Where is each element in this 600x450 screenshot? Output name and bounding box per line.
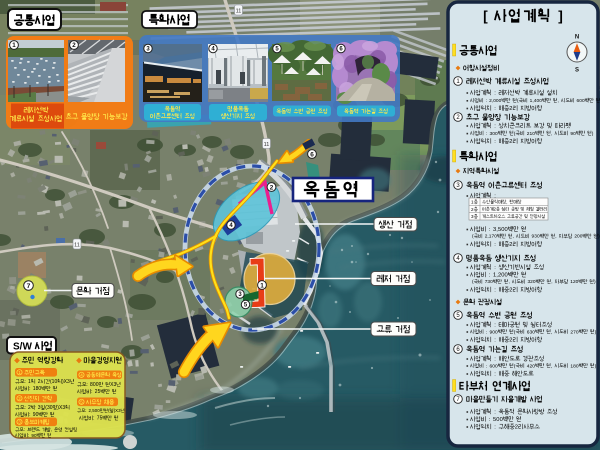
svg-text:1: 1 <box>28 379 31 385</box>
svg-text:0: 0 <box>582 98 585 104</box>
svg-text::: : <box>85 408 86 413</box>
svg-text:11: 11 <box>264 142 270 148</box>
svg-text:0: 0 <box>532 131 535 137</box>
svg-text:,: , <box>551 280 552 285</box>
svg-text:0: 0 <box>50 405 53 411</box>
svg-text::: : <box>486 330 487 335</box>
svg-text:S/W: S/W <box>13 342 32 353</box>
svg-text:0: 0 <box>96 382 99 388</box>
svg-text:0: 0 <box>576 279 579 285</box>
svg-text:]: ] <box>558 9 563 24</box>
svg-text:2: 2 <box>18 396 21 401</box>
svg-text:0: 0 <box>580 234 583 240</box>
svg-text:5: 5 <box>98 389 101 395</box>
svg-text:,: , <box>51 427 52 432</box>
svg-text::: : <box>29 386 30 392</box>
svg-text:1: 1 <box>18 370 21 375</box>
svg-text:0: 0 <box>505 227 508 233</box>
svg-text:,: , <box>551 132 552 137</box>
svg-text:0: 0 <box>532 329 535 335</box>
svg-text:0: 0 <box>537 234 540 240</box>
svg-text:[: [ <box>483 9 488 24</box>
svg-text:S: S <box>575 68 579 74</box>
svg-text::: : <box>486 99 487 104</box>
svg-text:1: 1 <box>260 282 264 289</box>
svg-text:6: 6 <box>310 151 314 158</box>
svg-text:11: 11 <box>74 243 80 249</box>
svg-text:0: 0 <box>495 363 498 369</box>
svg-text:0: 0 <box>532 363 535 369</box>
svg-text:2: 2 <box>509 242 512 248</box>
svg-text::: : <box>24 427 25 432</box>
svg-text:2: 2 <box>72 42 76 49</box>
svg-text::: : <box>28 433 29 438</box>
svg-text:0: 0 <box>573 131 576 137</box>
svg-text:2: 2 <box>38 379 41 385</box>
svg-text:0: 0 <box>495 329 498 335</box>
svg-text:11: 11 <box>236 9 242 15</box>
svg-text:3: 3 <box>62 405 65 411</box>
svg-text:2: 2 <box>270 184 274 191</box>
svg-text:5: 5 <box>80 399 83 404</box>
svg-text:7: 7 <box>27 283 31 290</box>
svg-text:0: 0 <box>495 131 498 137</box>
svg-text:0: 0 <box>499 98 502 104</box>
svg-text::: : <box>24 379 25 385</box>
svg-text:2: 2 <box>515 425 518 431</box>
svg-text:0: 0 <box>38 386 41 392</box>
svg-text:0: 0 <box>36 412 39 418</box>
svg-text:1: 1 <box>12 42 16 49</box>
svg-text::: : <box>24 405 25 411</box>
svg-text:2: 2 <box>28 405 31 411</box>
svg-text:5: 5 <box>100 416 103 422</box>
svg-text:0: 0 <box>576 329 579 335</box>
svg-text:2: 2 <box>509 106 512 112</box>
svg-text:N: N <box>575 35 579 41</box>
svg-text:,: , <box>551 364 552 369</box>
svg-text:,: , <box>506 199 507 204</box>
svg-text::: : <box>486 132 487 137</box>
svg-text:0: 0 <box>576 363 579 369</box>
svg-text::: : <box>91 389 92 395</box>
svg-text::: : <box>93 416 94 422</box>
svg-text:0: 0 <box>539 98 542 104</box>
svg-text:3: 3 <box>18 419 21 424</box>
svg-text:0: 0 <box>54 379 57 385</box>
svg-text::: : <box>29 412 30 418</box>
svg-text::: : <box>486 364 487 369</box>
svg-text:0: 0 <box>500 417 503 423</box>
svg-text:2: 2 <box>509 139 512 145</box>
svg-text:0: 0 <box>533 279 536 285</box>
svg-text::: : <box>86 382 87 388</box>
svg-text:3: 3 <box>38 405 41 411</box>
svg-text:3: 3 <box>113 382 116 388</box>
svg-text:0: 0 <box>490 279 493 285</box>
svg-text:,: , <box>555 235 556 240</box>
svg-text:2: 2 <box>509 288 512 294</box>
svg-text:0: 0 <box>505 273 508 279</box>
svg-text:,: , <box>558 99 559 104</box>
svg-text:0: 0 <box>34 433 37 438</box>
svg-text:2: 2 <box>509 338 512 344</box>
svg-text:3: 3 <box>67 379 70 385</box>
svg-text:,: , <box>513 235 514 240</box>
svg-text:4: 4 <box>80 372 83 377</box>
svg-text:0: 0 <box>494 234 497 240</box>
svg-text:,: , <box>508 280 509 285</box>
svg-text:,: , <box>551 330 552 335</box>
